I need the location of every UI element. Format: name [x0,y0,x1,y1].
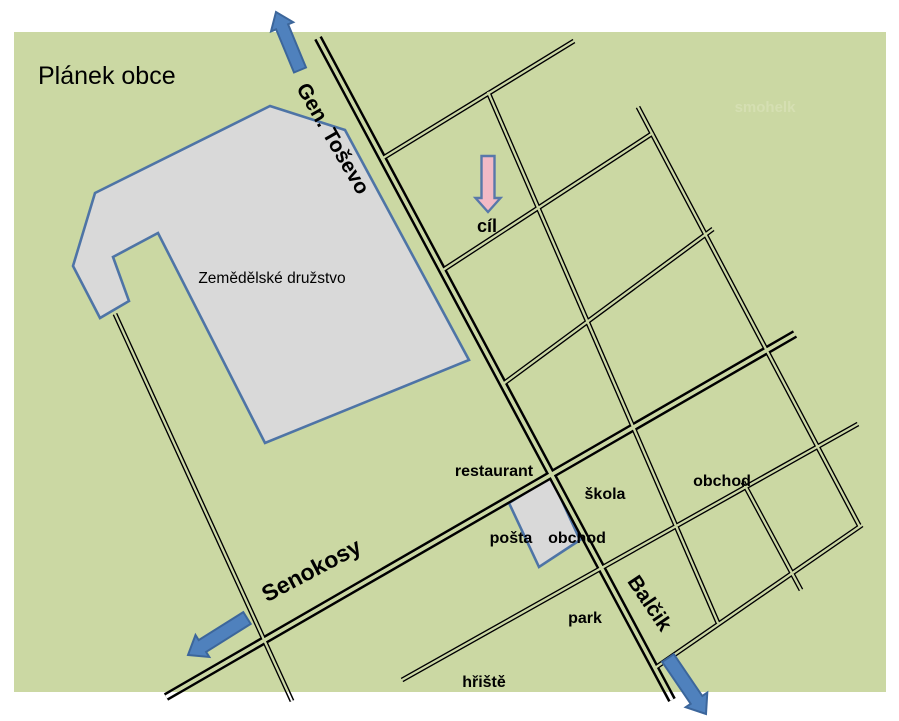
label-skola: škola [585,486,626,503]
label-posta: pošta [490,530,533,547]
label-hriste: hřiště [462,674,506,691]
map-svg: smohelk [0,0,899,721]
label-obchod-center: obchod [548,530,606,547]
village-map: smohelk [0,0,899,721]
watermark-text: smohelk [735,99,797,116]
map-title: Plánek obce [38,62,176,90]
label-park: park [568,610,602,627]
label-obchod-east: obchod [693,473,751,490]
label-restaurant: restaurant [455,463,534,480]
farm-label: Zemědělské družstvo [198,270,345,287]
label-cil: cíl [477,216,497,236]
